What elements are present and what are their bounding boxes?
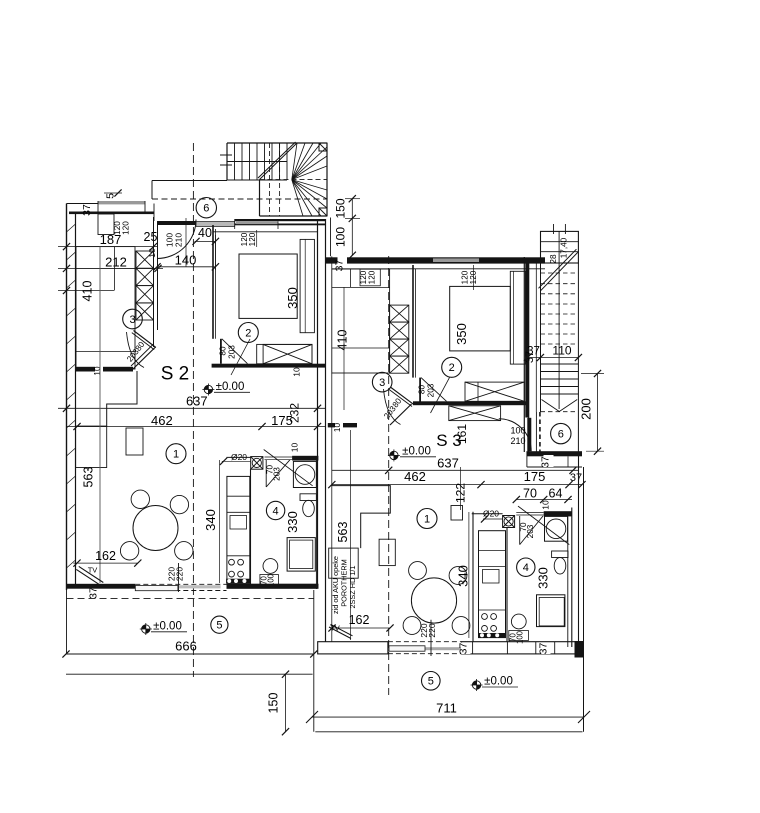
svg-text:220: 220 <box>427 623 437 637</box>
svg-text:±0.00: ±0.00 <box>216 381 245 393</box>
svg-text:212: 212 <box>105 254 127 269</box>
svg-text:220: 220 <box>175 567 185 581</box>
svg-text:4: 4 <box>523 562 529 574</box>
svg-text:350: 350 <box>454 323 469 345</box>
svg-text:37: 37 <box>88 587 100 599</box>
svg-text:2: 2 <box>449 362 455 374</box>
svg-text:±0.00: ±0.00 <box>484 676 513 688</box>
svg-text:10: 10 <box>541 500 551 510</box>
svg-text:S 2: S 2 <box>161 364 190 385</box>
svg-text:3: 3 <box>129 314 135 326</box>
svg-text:1: 1 <box>173 449 179 461</box>
svg-text:100: 100 <box>516 630 525 644</box>
svg-text:4: 4 <box>273 505 279 517</box>
svg-text:10: 10 <box>93 366 102 376</box>
svg-text:110: 110 <box>552 344 571 358</box>
svg-text:162: 162 <box>95 549 116 563</box>
svg-text:64: 64 <box>549 487 563 501</box>
svg-text:150: 150 <box>334 198 348 218</box>
svg-text:175: 175 <box>524 469 546 484</box>
svg-text:462: 462 <box>404 469 426 484</box>
svg-text:563: 563 <box>336 522 350 543</box>
svg-text:5: 5 <box>216 620 222 632</box>
svg-text:17,40: 17,40 <box>560 237 569 258</box>
svg-text:70: 70 <box>523 487 537 501</box>
svg-text:2SSZ HD 1/1: 2SSZ HD 1/1 <box>348 566 357 609</box>
svg-text:410: 410 <box>336 330 350 351</box>
svg-text:203: 203 <box>228 345 237 359</box>
svg-text:203: 203 <box>427 383 436 397</box>
svg-text:200: 200 <box>579 398 594 420</box>
svg-text:340: 340 <box>456 565 471 587</box>
svg-text:37: 37 <box>540 456 552 468</box>
svg-text:187: 187 <box>100 232 122 247</box>
svg-text:TV: TV <box>88 566 98 575</box>
svg-text:10: 10 <box>290 443 300 453</box>
svg-text:637: 637 <box>437 456 459 471</box>
svg-text:711: 711 <box>436 701 457 716</box>
svg-text:Ø20: Ø20 <box>483 509 499 519</box>
svg-text:210: 210 <box>173 233 183 247</box>
svg-text:37: 37 <box>527 346 540 358</box>
svg-text:330: 330 <box>536 567 551 589</box>
svg-text:563: 563 <box>82 467 96 488</box>
svg-text:6: 6 <box>203 203 209 215</box>
svg-text:462: 462 <box>151 413 173 428</box>
svg-text:5: 5 <box>428 676 434 688</box>
svg-text:10: 10 <box>333 423 342 433</box>
svg-text:350: 350 <box>285 287 300 309</box>
svg-text:666: 666 <box>175 639 197 654</box>
svg-text:161: 161 <box>455 424 469 444</box>
svg-text:100: 100 <box>334 227 348 247</box>
svg-text:80: 80 <box>418 385 427 395</box>
svg-text:120: 120 <box>122 221 131 235</box>
svg-text:37: 37 <box>538 643 550 655</box>
svg-text:120: 120 <box>368 270 377 284</box>
svg-text:3: 3 <box>379 377 385 389</box>
svg-text:100: 100 <box>510 426 525 436</box>
svg-text:232: 232 <box>288 403 302 423</box>
svg-text:37: 37 <box>458 643 470 655</box>
svg-text:±0.00: ±0.00 <box>153 621 182 633</box>
svg-text:28: 28 <box>549 254 558 264</box>
svg-text:25: 25 <box>144 230 158 244</box>
svg-text:340: 340 <box>203 509 218 531</box>
svg-text:410: 410 <box>81 281 95 302</box>
svg-text:203: 203 <box>526 524 535 538</box>
svg-text:80: 80 <box>219 346 228 356</box>
svg-text:1: 1 <box>424 513 430 525</box>
svg-text:6: 6 <box>558 428 564 440</box>
svg-text:±0.00: ±0.00 <box>402 446 431 458</box>
svg-text:2: 2 <box>245 327 251 339</box>
svg-text:37: 37 <box>334 260 346 272</box>
svg-text:10: 10 <box>292 367 302 377</box>
svg-text:150: 150 <box>267 693 281 714</box>
svg-text:203: 203 <box>273 467 282 481</box>
svg-text:37: 37 <box>81 204 93 216</box>
svg-text:637: 637 <box>186 393 208 408</box>
svg-text:330: 330 <box>285 511 300 533</box>
svg-text:40: 40 <box>198 226 212 240</box>
svg-text:210: 210 <box>510 436 525 446</box>
svg-text:TV: TV <box>330 624 340 633</box>
svg-text:120: 120 <box>248 232 257 246</box>
svg-text:162: 162 <box>349 613 370 627</box>
